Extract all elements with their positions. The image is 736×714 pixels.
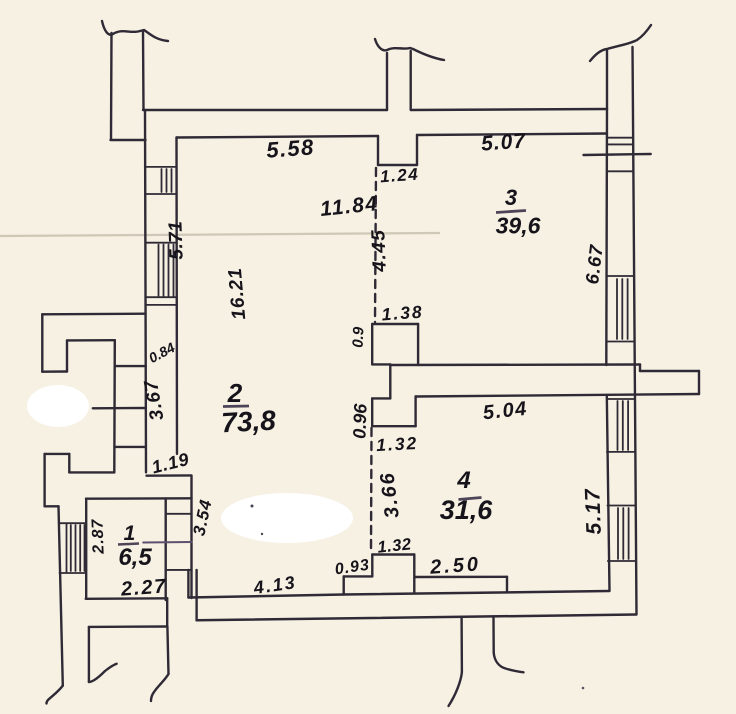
svg-text:3: 3	[505, 185, 517, 210]
svg-text:5.58: 5.58	[265, 134, 315, 162]
svg-text:0.9: 0.9	[350, 326, 368, 348]
svg-text:4: 4	[456, 467, 470, 494]
svg-text:31,6: 31,6	[440, 495, 494, 525]
svg-text:1: 1	[124, 522, 136, 545]
svg-text:2.87: 2.87	[89, 518, 107, 555]
svg-text:5.71: 5.71	[165, 220, 187, 260]
svg-text:39,6: 39,6	[496, 213, 541, 239]
svg-text:2.27: 2.27	[119, 575, 168, 600]
svg-text:1.38: 1.38	[381, 302, 424, 325]
svg-text:6,5: 6,5	[118, 544, 152, 571]
svg-text:2.50: 2.50	[428, 553, 481, 579]
svg-text:5.07: 5.07	[480, 129, 527, 155]
svg-text:1.32: 1.32	[376, 433, 419, 455]
svg-text:73,8: 73,8	[220, 405, 276, 439]
svg-text:1.32: 1.32	[377, 535, 413, 556]
svg-text:4.45: 4.45	[368, 228, 391, 273]
svg-text:1.24: 1.24	[379, 165, 419, 187]
svg-text:2: 2	[227, 378, 243, 408]
svg-text:5.04: 5.04	[482, 398, 529, 425]
svg-text:5.17: 5.17	[581, 487, 606, 535]
svg-text:0.96: 0.96	[349, 402, 370, 439]
